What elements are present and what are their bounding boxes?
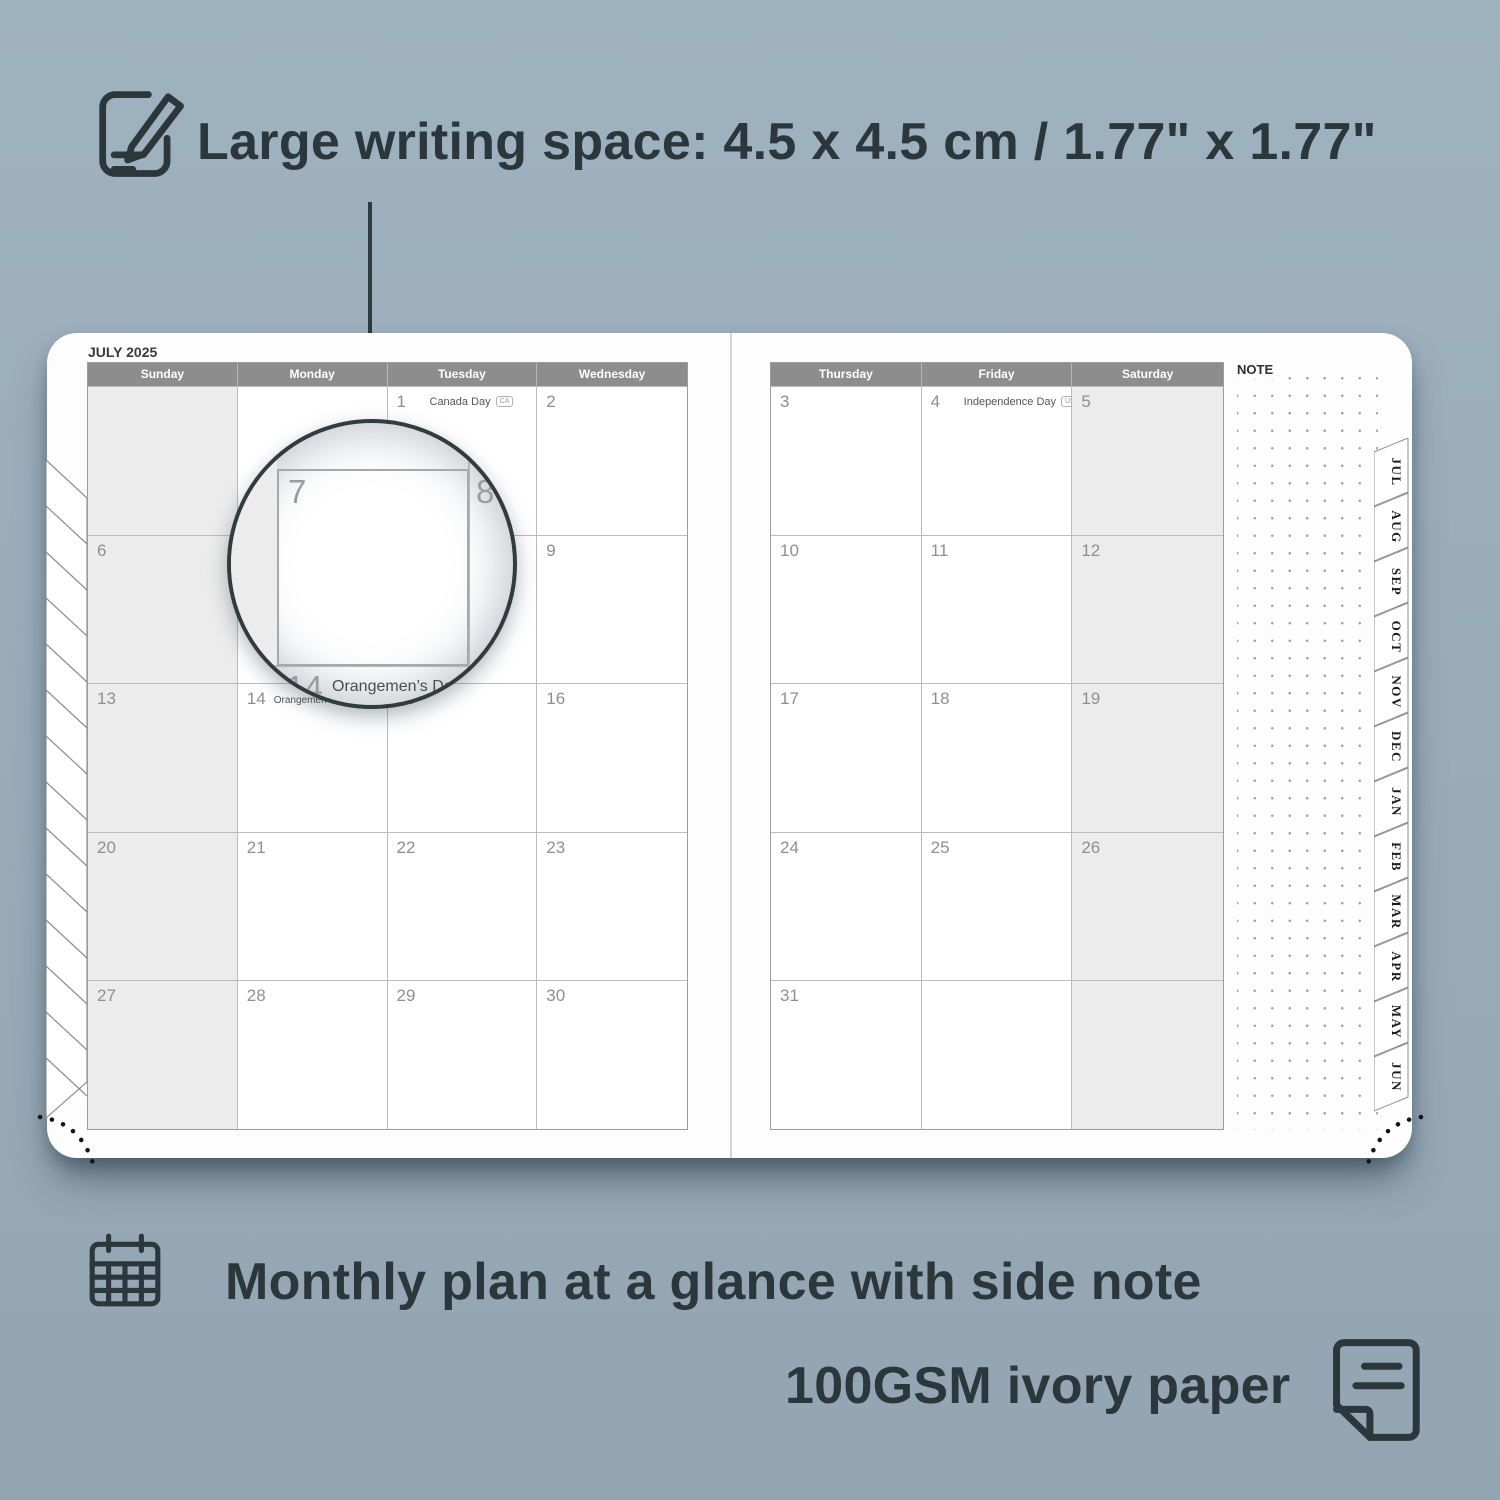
date-number: 10 — [780, 541, 799, 561]
date-number: 29 — [397, 986, 416, 1006]
calendar-cell: 15 — [388, 683, 538, 832]
holiday-label: Independence DayUS — [964, 396, 1079, 408]
page-fold-line — [730, 333, 732, 1158]
magnified-date-7: 7 — [288, 473, 306, 511]
calendar-cell — [88, 386, 238, 535]
date-number: 24 — [780, 838, 799, 858]
calendar-cell: 10 — [771, 535, 922, 684]
date-number: 16 — [546, 689, 565, 709]
date-number: 28 — [247, 986, 266, 1006]
date-number: 1 — [397, 392, 406, 412]
day-header: Wednesday — [537, 363, 687, 386]
top-annotation-text: Large writing space: 4.5 x 4.5 cm / 1.77… — [197, 112, 1377, 172]
calendar-cell: 26 — [1072, 832, 1223, 981]
month-tab-label: AUG — [1389, 510, 1404, 543]
date-number: 27 — [97, 986, 116, 1006]
calendar-cell: 21 — [238, 832, 388, 981]
bottom-annotation-1: Monthly plan at a glance with side note — [225, 1252, 1202, 1312]
month-tab-label: MAY — [1389, 1005, 1404, 1039]
date-number: 5 — [1081, 392, 1090, 412]
date-number: 17 — [780, 689, 799, 709]
month-tab-label: DEC — [1389, 731, 1404, 763]
product-image: Large writing space: 4.5 x 4.5 cm / 1.77… — [0, 0, 1500, 1500]
calendar-cell: 28 — [238, 980, 388, 1129]
month-title: JULY 2025 — [88, 344, 157, 360]
date-number: 21 — [247, 838, 266, 858]
date-number: 23 — [546, 838, 565, 858]
magnified-weekend-shading — [231, 423, 277, 705]
calendar-cell: 4Independence DayUS — [922, 386, 1073, 535]
date-number: 31 — [780, 986, 799, 1006]
calendar-cell: 25 — [922, 832, 1073, 981]
magnified-date-14: 14 — [286, 669, 323, 707]
month-tab-label: NOV — [1389, 675, 1404, 708]
page-edge-hatch — [46, 450, 90, 1122]
magnifier-circle: 7 8 14 Orangemen’s Day (n.i.)UK — [227, 419, 517, 709]
magnified-holiday-label: Orangemen’s Day (n.i.)UK — [332, 678, 517, 696]
calendar-cell — [1072, 980, 1223, 1129]
country-badge: CA — [496, 396, 514, 407]
month-tab-label: FEB — [1389, 842, 1404, 872]
calendar-cell: 31 — [771, 980, 922, 1129]
day-header: Monday — [238, 363, 388, 386]
date-number: 26 — [1081, 838, 1100, 858]
date-number: 25 — [931, 838, 950, 858]
calendar-cell: 30 — [537, 980, 687, 1129]
day-header: Tuesday — [388, 363, 538, 386]
day-header: Saturday — [1072, 363, 1223, 386]
month-tab-label: OCT — [1389, 621, 1404, 654]
calendar-cell: 17 — [771, 683, 922, 832]
date-number: 22 — [397, 838, 416, 858]
date-number: 3 — [780, 392, 789, 412]
month-tab-label: JAN — [1389, 787, 1404, 817]
month-tab-label: MAR — [1389, 894, 1404, 930]
calendar-cell: 23 — [537, 832, 687, 981]
corner-stitch-left — [32, 1105, 122, 1185]
note-dot-grid: NOTE — [1237, 362, 1378, 1130]
calendar-cell — [922, 980, 1073, 1129]
calendar-cell: 5 — [1072, 386, 1223, 535]
paper-sheet-icon — [1316, 1334, 1426, 1446]
note-label: NOTE — [1237, 362, 1278, 379]
day-header: Thursday — [771, 363, 922, 386]
holiday-label: Canada DayCA — [430, 396, 514, 408]
date-number: 13 — [97, 689, 116, 709]
calendar-cell: 3 — [771, 386, 922, 535]
calendar-cell: 16 — [537, 683, 687, 832]
note-pencil-icon — [86, 78, 190, 186]
date-number: 6 — [97, 541, 106, 561]
date-number: 30 — [546, 986, 565, 1006]
calendar-cell: 20 — [88, 832, 238, 981]
corner-stitch-right — [1339, 1105, 1429, 1185]
magnified-date-8: 8 — [476, 473, 494, 511]
date-number: 11 — [931, 541, 949, 561]
calendar-cell: 19 — [1072, 683, 1223, 832]
calendar-cell: 6 — [88, 535, 238, 684]
calendar-cell: 18 — [922, 683, 1073, 832]
calendar-cell: 2 — [537, 386, 687, 535]
month-tab-label: JUL — [1389, 457, 1404, 486]
date-number: 2 — [546, 392, 555, 412]
date-number: 20 — [97, 838, 116, 858]
calendar-grid-icon — [84, 1230, 166, 1312]
calendar-cell: 12 — [1072, 535, 1223, 684]
calendar-cell: 22 — [388, 832, 538, 981]
bottom-annotation-2: 100GSM ivory paper — [785, 1356, 1290, 1416]
day-header: Friday — [922, 363, 1073, 386]
calendar-cell: 13 — [88, 683, 238, 832]
month-tab-label: SEP — [1389, 568, 1404, 596]
date-number: 18 — [931, 689, 950, 709]
calendar-cell: 24 — [771, 832, 922, 981]
month-tab-label: APR — [1389, 951, 1404, 982]
month-tab-label: JUN — [1389, 1062, 1404, 1092]
magnified-holiday-text: Orangemen’s Day (n.i.) — [332, 678, 497, 695]
date-number: 19 — [1081, 689, 1100, 709]
date-number: 4 — [931, 392, 940, 412]
calendar-cell: 9 — [537, 535, 687, 684]
date-number: 12 — [1081, 541, 1100, 561]
month-tabs: JULAUGSEPOCTNOVDECJANFEBMARAPRMAYJUN — [1374, 438, 1416, 1128]
calendar-cell: 29 — [388, 980, 538, 1129]
date-number: 9 — [546, 541, 555, 561]
right-month-grid: ThursdayFridaySaturday34Independence Day… — [770, 362, 1224, 1130]
day-header: Sunday — [88, 363, 238, 386]
calendar-cell: 11 — [922, 535, 1073, 684]
